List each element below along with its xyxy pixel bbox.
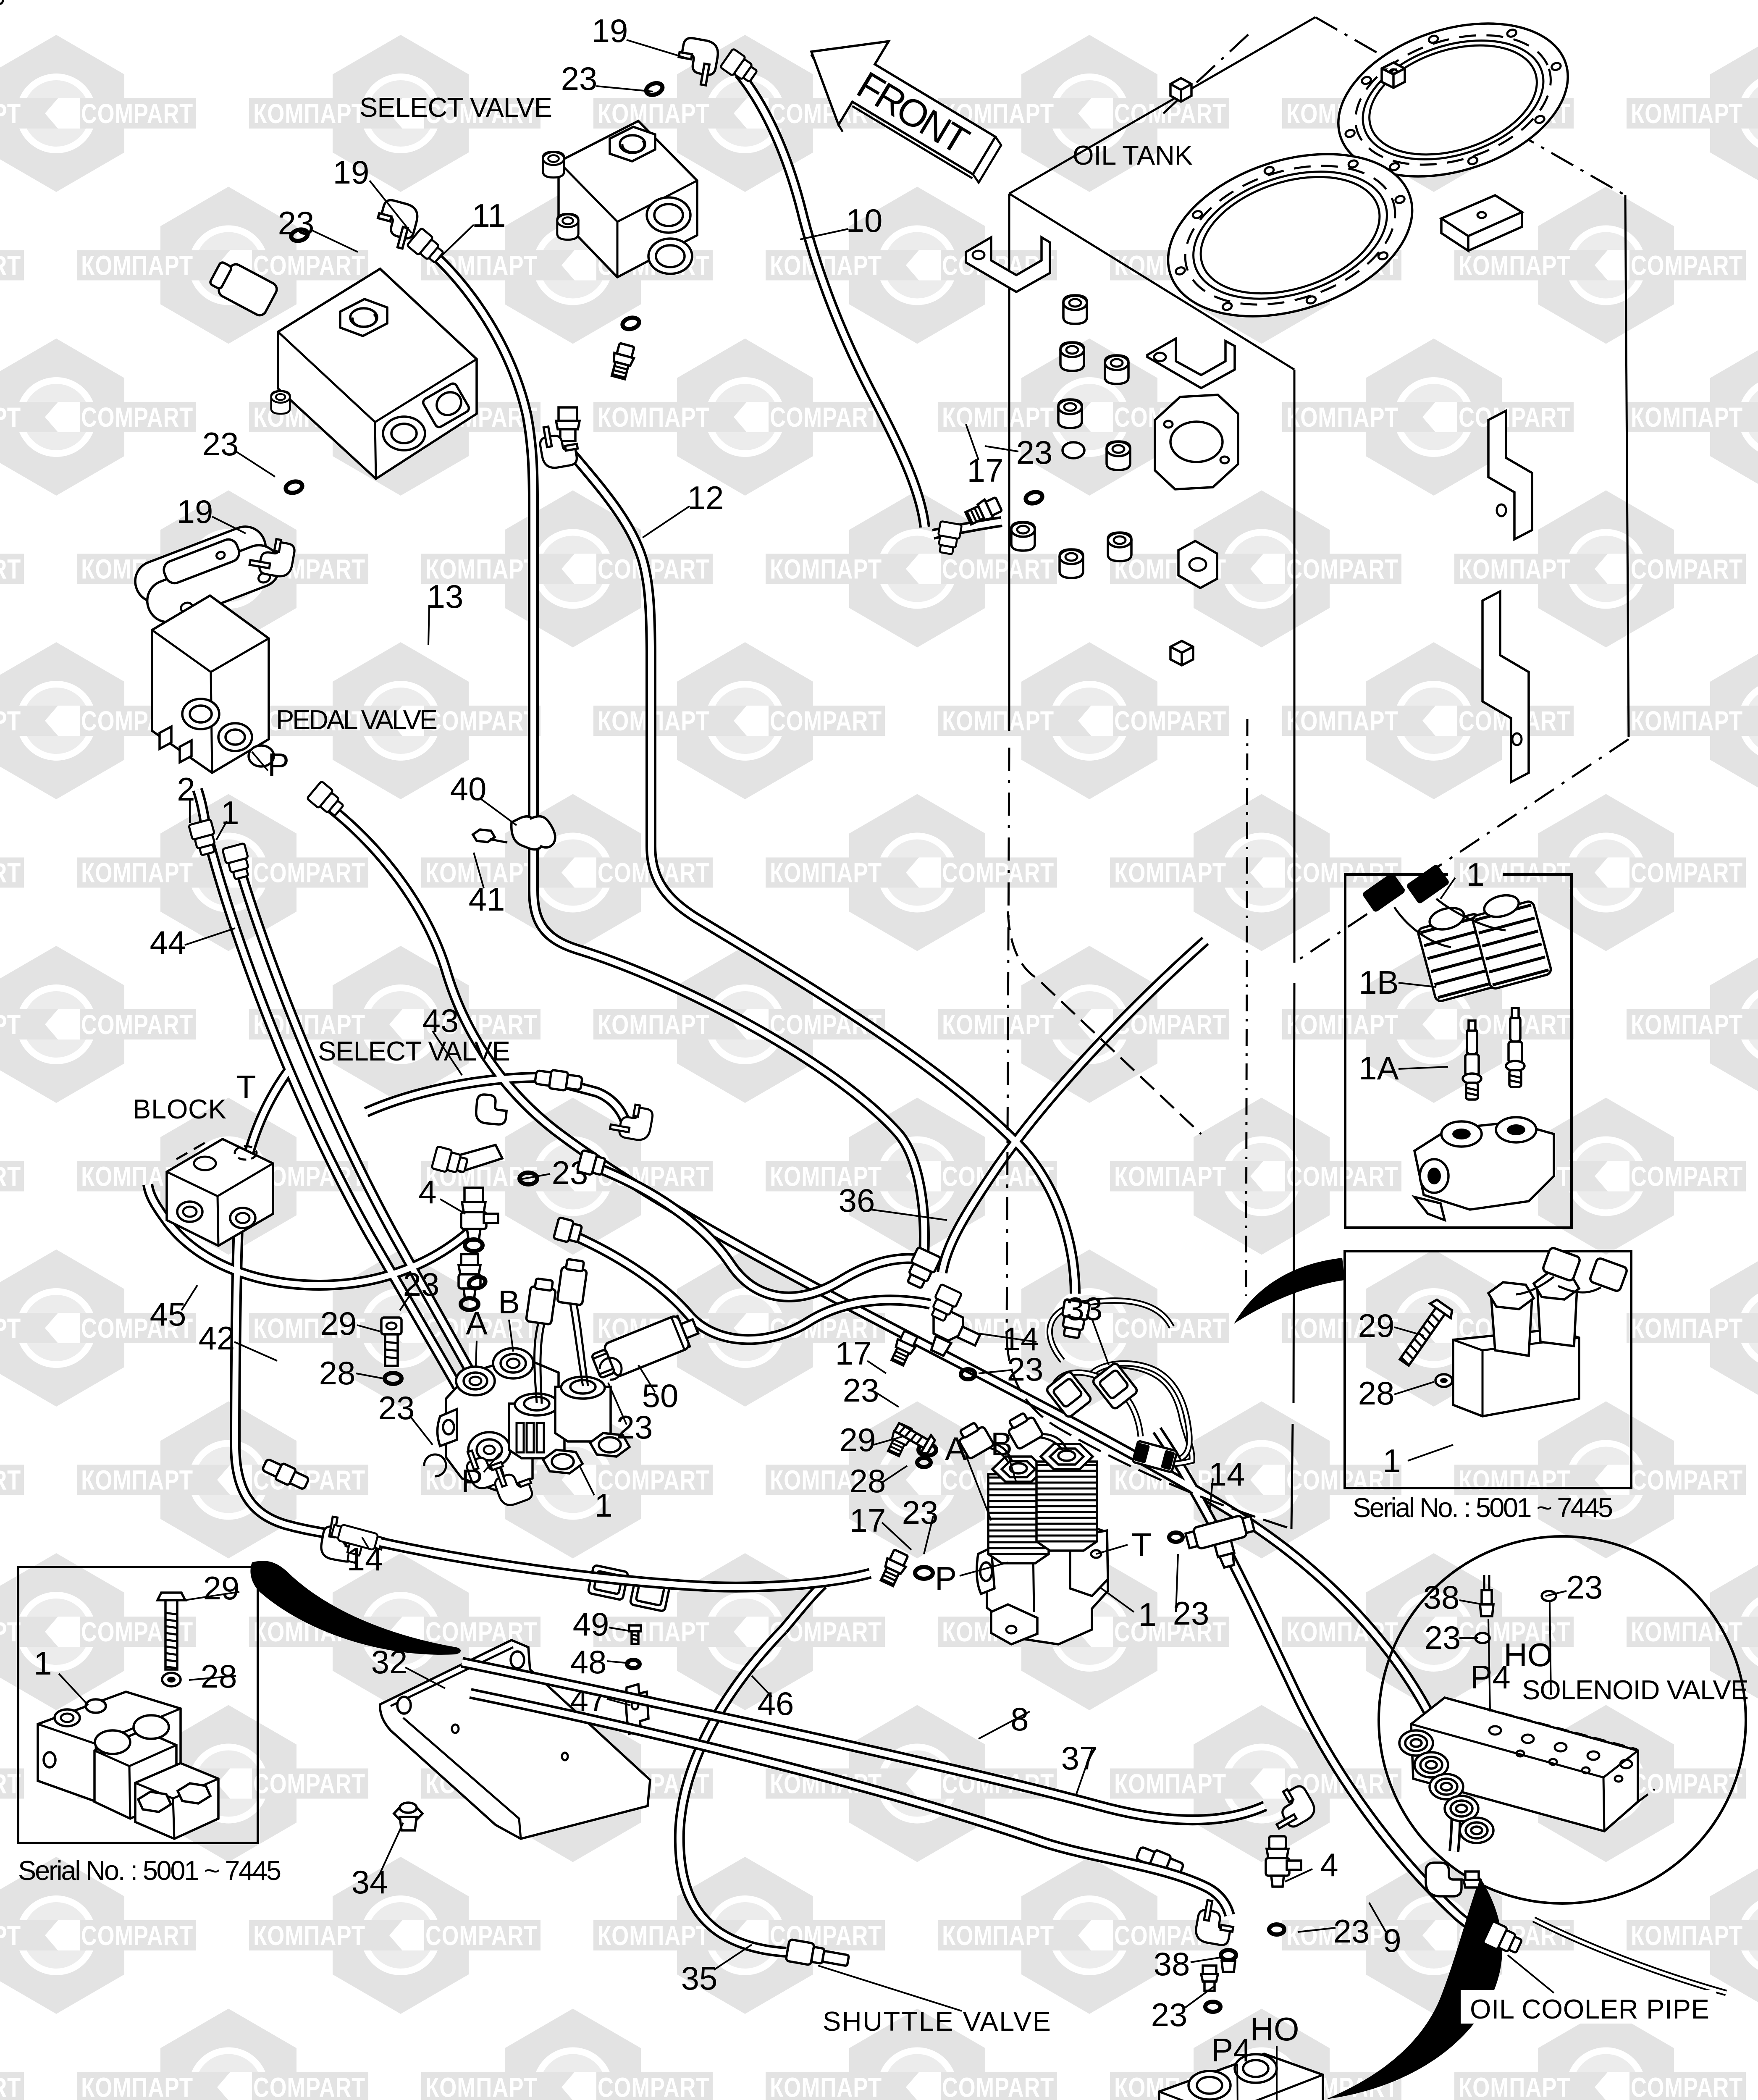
svg-text:23: 23 — [1425, 1619, 1461, 1656]
svg-text:T: T — [236, 1068, 256, 1105]
svg-text:4: 4 — [418, 1173, 436, 1210]
svg-text:SHUTTLE VALVE: SHUTTLE VALVE — [823, 2006, 1051, 2037]
svg-text:SELECT VALVE: SELECT VALVE — [318, 1036, 510, 1066]
svg-text:SELECT VALVE: SELECT VALVE — [359, 92, 552, 123]
svg-text:36: 36 — [839, 1182, 875, 1219]
svg-text:29: 29 — [1358, 1307, 1395, 1344]
svg-text:23: 23 — [843, 1372, 879, 1409]
svg-text:10: 10 — [846, 202, 883, 239]
svg-text:HO: HO — [1504, 1636, 1553, 1673]
svg-text:23: 23 — [1007, 1351, 1044, 1388]
svg-text:32: 32 — [371, 1643, 408, 1680]
svg-text:45: 45 — [150, 1296, 186, 1333]
svg-text:A: A — [466, 1305, 488, 1341]
svg-text:44: 44 — [150, 924, 186, 961]
svg-text:37: 37 — [1061, 1740, 1098, 1777]
svg-text:T: T — [1131, 1526, 1152, 1563]
svg-text:17: 17 — [835, 1335, 872, 1372]
svg-text:29: 29 — [840, 1421, 876, 1458]
svg-text:40: 40 — [450, 770, 487, 807]
svg-text:23: 23 — [202, 425, 239, 462]
svg-text:23: 23 — [1566, 1569, 1603, 1606]
svg-text:B: B — [498, 1284, 520, 1320]
svg-text:42: 42 — [199, 1320, 235, 1357]
svg-text:17: 17 — [850, 1502, 886, 1539]
svg-text:1: 1 — [1383, 1442, 1401, 1479]
svg-text:Serial No. : 5001 ~ 7445: Serial No. : 5001 ~ 7445 — [1353, 1492, 1613, 1523]
svg-text:23: 23 — [378, 1389, 415, 1426]
svg-text:43: 43 — [422, 1002, 459, 1039]
svg-text:A: A — [945, 1430, 967, 1467]
svg-text:28: 28 — [850, 1462, 886, 1499]
svg-text:PEDAL VALVE: PEDAL VALVE — [276, 704, 438, 735]
svg-text:14: 14 — [347, 1541, 383, 1578]
svg-text:BLOCK: BLOCK — [133, 1094, 226, 1124]
svg-text:46: 46 — [758, 1685, 794, 1722]
svg-text:P: P — [461, 1462, 483, 1499]
svg-text:12: 12 — [687, 479, 724, 516]
svg-text:OIL COOLER PIPE: OIL COOLER PIPE — [1470, 1994, 1709, 2024]
svg-text:Serial No. : 5001 ~ 7445: Serial No. : 5001 ~ 7445 — [18, 1855, 281, 1886]
svg-text:1B: 1B — [1359, 964, 1399, 1001]
svg-text:29: 29 — [320, 1305, 357, 1342]
svg-text:35: 35 — [681, 1960, 718, 1997]
svg-text:1: 1 — [594, 1487, 612, 1524]
svg-text:41: 41 — [469, 881, 505, 918]
svg-text:38: 38 — [1154, 1945, 1190, 1982]
svg-text:1: 1 — [1138, 1596, 1156, 1633]
svg-text:38: 38 — [1423, 1579, 1460, 1616]
svg-text:P: P — [935, 1560, 957, 1597]
svg-text:28: 28 — [1358, 1375, 1395, 1412]
svg-text:33: 33 — [1066, 1290, 1103, 1327]
svg-text:4: 4 — [1320, 1846, 1338, 1883]
svg-text:23: 23 — [1151, 1996, 1188, 2033]
svg-text:17: 17 — [967, 452, 1004, 489]
svg-text:2: 2 — [177, 771, 195, 808]
svg-text:23: 23 — [278, 205, 315, 241]
svg-text:19: 19 — [333, 154, 370, 191]
svg-text:23: 23 — [1173, 1595, 1210, 1632]
svg-text:14: 14 — [1209, 1456, 1245, 1493]
svg-text:9: 9 — [1383, 1922, 1401, 1959]
svg-text:19: 19 — [592, 12, 628, 49]
svg-text:OIL TANK: OIL TANK — [1073, 140, 1193, 171]
svg-text:48: 48 — [570, 1643, 607, 1680]
svg-text:SOLENOID VALVE: SOLENOID VALVE — [1522, 1675, 1749, 1705]
svg-text:HO: HO — [1250, 2011, 1299, 2047]
svg-text:P: P — [268, 746, 289, 783]
svg-text:28: 28 — [319, 1354, 356, 1391]
svg-text:1A: 1A — [1359, 1050, 1399, 1087]
svg-text:23: 23 — [1333, 1913, 1370, 1950]
svg-text:P4: P4 — [1470, 1659, 1510, 1696]
svg-text:P4: P4 — [1211, 2032, 1251, 2068]
svg-text:1: 1 — [1466, 856, 1484, 893]
svg-text:23: 23 — [1016, 434, 1053, 471]
svg-text:19: 19 — [177, 493, 213, 530]
svg-text:8: 8 — [1010, 1701, 1029, 1738]
svg-text:23: 23 — [902, 1494, 939, 1531]
svg-text:29: 29 — [203, 1570, 240, 1606]
svg-text:13: 13 — [427, 578, 464, 615]
svg-text:1: 1 — [34, 1645, 52, 1682]
svg-text:49: 49 — [573, 1606, 609, 1643]
svg-text:23: 23 — [561, 60, 598, 97]
svg-text:11: 11 — [472, 197, 506, 234]
